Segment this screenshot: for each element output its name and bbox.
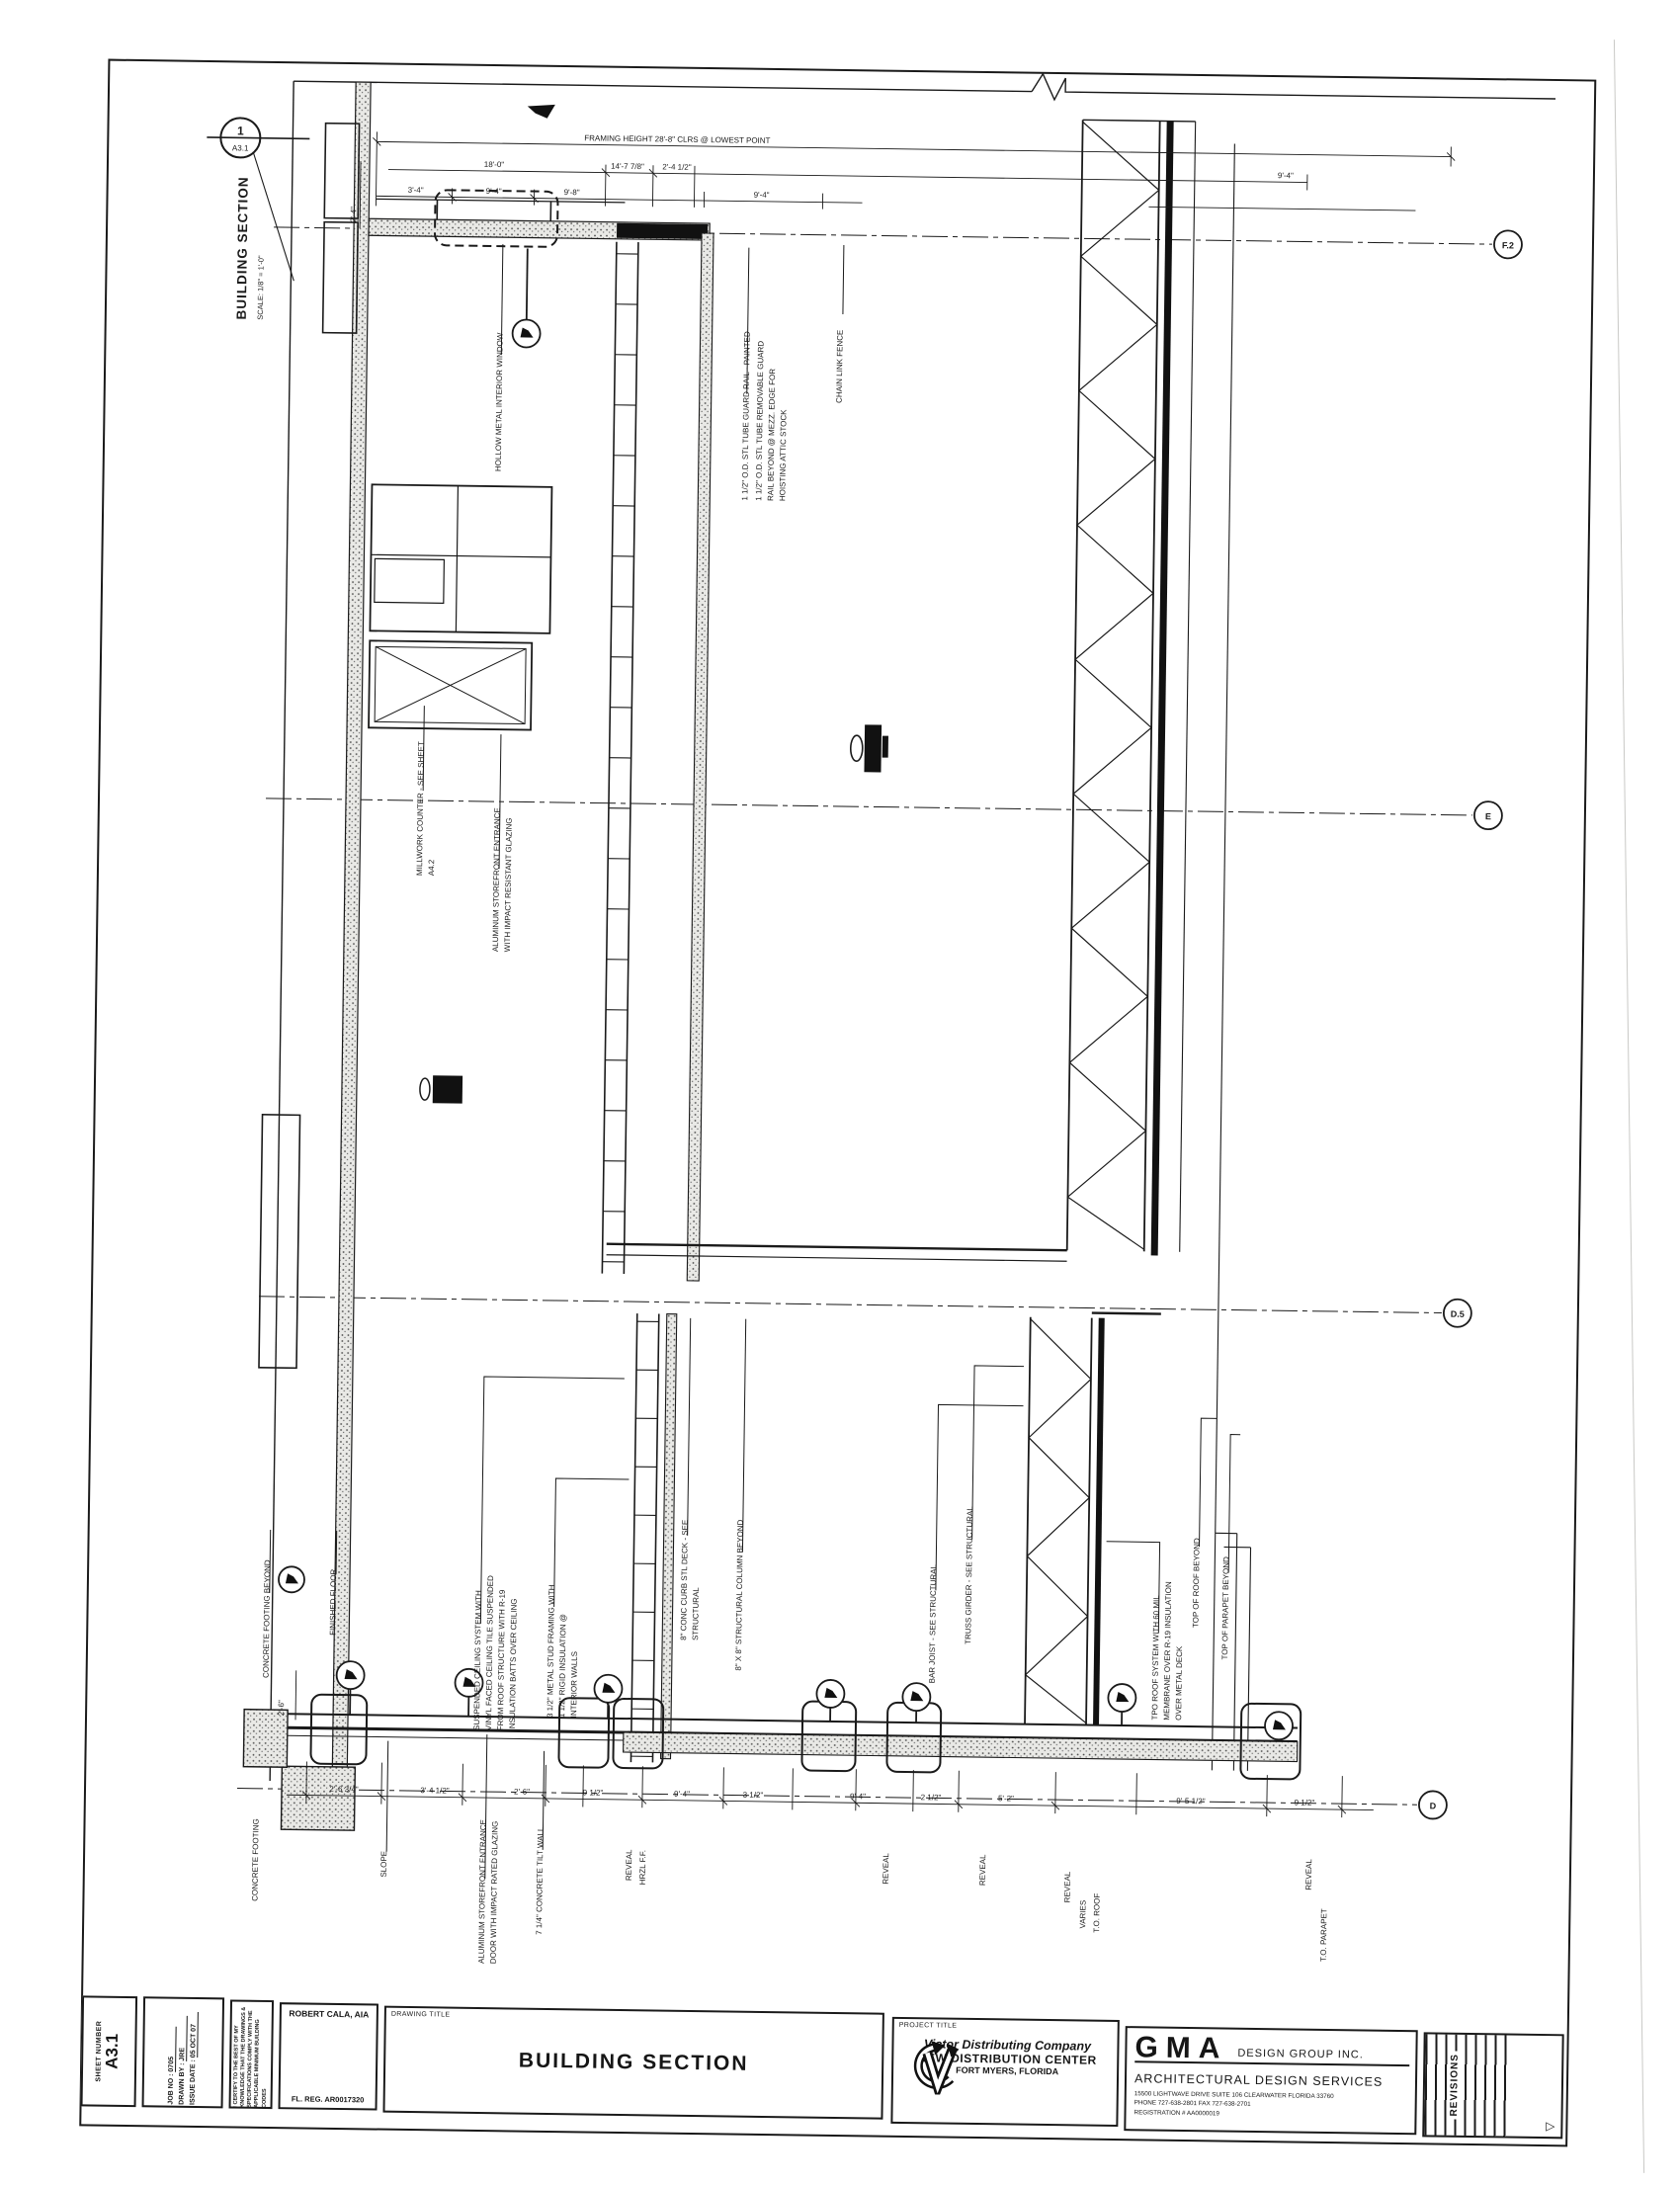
dimension-text: 9'-4"	[754, 191, 770, 200]
annotation: SUSPENDED CEILING SYSTEM WITH	[472, 1590, 483, 1730]
annotation: ALUMINUM STOREFRONT ENTRANCE	[477, 1819, 488, 1964]
dimension-text: 3 1/2"	[743, 1791, 764, 1800]
annotation: HRZL F.F.	[638, 1850, 647, 1885]
annotation: STRUCTURAL	[691, 1587, 701, 1640]
tilt-wall-bottom	[624, 1732, 1298, 1762]
certification-text: I CERTIFY TO THE BEST OF MY KNOWLEDGE TH…	[233, 2001, 270, 2108]
annotation: REVEAL	[978, 1854, 987, 1886]
annotation: HOISTING ATTIC STOCK	[778, 409, 788, 501]
drawing-title-box: DRAWING TITLE BUILDING SECTION	[382, 2006, 883, 2120]
revisions-label: REVISIONS	[1448, 2051, 1462, 2120]
annotation: T.O. PARAPET	[1319, 1908, 1329, 1962]
dimension-text: 9 1/2"	[1295, 1798, 1315, 1807]
annotation: MILLWORK COUNTER - SEE SHEET	[415, 741, 426, 876]
dimension-text: 3'-4"	[408, 186, 424, 195]
grid-bubble-label: D	[1430, 1801, 1437, 1810]
firm-suffix: DESIGN GROUP INC.	[1237, 2048, 1364, 2064]
annotation: 1 1/2" O.D. STL TUBE GUARD RAIL - PAINTE…	[740, 331, 751, 501]
annotation: FROM ROOF STRUCTURE WITH R-19	[496, 1589, 507, 1730]
annotation: INSULATION BATTS OVER CEILING	[508, 1598, 519, 1730]
vertical-dimension: 2'-6"	[277, 1700, 286, 1716]
section-marker-sheet: A3.1	[232, 143, 249, 152]
interior-window-elevation	[369, 484, 551, 730]
dimension-text: 9'-4"	[1278, 171, 1294, 180]
architect-registration: FL. REG. AR0017320	[281, 2094, 376, 2104]
annotation: HOLLOW METAL INTERIOR WINDOW	[494, 332, 505, 471]
annotation: VINYL FACED CEILING TILE SUSPENDED	[484, 1575, 495, 1730]
architect-name: ROBERT CALA, AIA	[282, 2008, 377, 2019]
annotation: VARIES	[1078, 1900, 1087, 1929]
dimension-text: 9'-8"	[564, 188, 580, 197]
annotation: ALUMINUM STOREFRONT ENTRANCE	[491, 807, 502, 952]
grid-bubble-label: D.5	[1451, 1309, 1465, 1319]
dimension-text: 9'-4"	[850, 1792, 866, 1801]
drawn-by-label: DRAWN BY :	[179, 2062, 187, 2104]
dimension-text: 2 1/2"	[921, 1793, 942, 1802]
dimension-text: 9'-5 1/2"	[1176, 1797, 1206, 1806]
project-title-box: PROJECT TITLE Victor Distributing Compan…	[890, 2017, 1119, 2127]
dimension-text: FRAMING HEIGHT 28'-8" CLRS @ LOWEST POIN…	[584, 133, 770, 145]
certification-box: I CERTIFY TO THE BEST OF MY KNOWLEDGE TH…	[229, 1999, 275, 2109]
dimension-text: 3'-4 1/2"	[420, 1786, 450, 1795]
dimension-text: 9'-4"	[674, 1790, 690, 1799]
annotation: BAR JOIST - SEE STRUCTURAL	[928, 1563, 939, 1683]
north-flag-marker	[528, 104, 555, 118]
issue-date-value: 05 OCT 07	[190, 2012, 199, 2058]
firm-services: ARCHITECTURAL DESIGN SERVICES	[1134, 2071, 1383, 2089]
annotation: CONCRETE FOOTING	[250, 1818, 260, 1901]
roof-deck-upper	[1151, 122, 1174, 1256]
annotation: A4.2	[427, 859, 436, 876]
project-title-label: PROJECT TITLE	[899, 2022, 958, 2030]
annotation: INTERIOR WALLS	[569, 1651, 579, 1718]
annotation: 3 1/2" METAL STUD FRAMING WITH	[546, 1584, 556, 1718]
roof-line-top	[270, 63, 1555, 1799]
revisions-grid	[1424, 2034, 1508, 2136]
annotation: DOOR WITH IMPACT RATED GLAZING	[489, 1821, 500, 1965]
annotation: 7 1/4" CONCRETE TILT WALL	[535, 1826, 546, 1935]
annotation: TOP OF PARAPET BEYOND	[1220, 1556, 1230, 1660]
annotation: MEMBRANE OVER R-19 INSULATION	[1162, 1581, 1173, 1721]
drawing-title: BUILDING SECTION	[385, 2048, 882, 2078]
annotation: REVEAL	[1304, 1859, 1313, 1891]
job-no-value: 0705	[168, 2027, 177, 2072]
annotation: 1 1/2" O.D. STL TUBE REMOVABLE GUARD	[754, 341, 765, 501]
vertical-dimension: 2'-4"	[349, 207, 358, 222]
architect-seal-box: ROBERT CALA, AIA FL. REG. AR0017320	[279, 2002, 378, 2110]
dims-top-group: FRAMING HEIGHT 28'-8" CLRS @ LOWEST POIN…	[408, 131, 1295, 208]
dimension-text: 18'-0"	[484, 160, 505, 169]
annotation: REVEAL	[1063, 1871, 1072, 1902]
interior-elevation-marker	[420, 1075, 462, 1104]
grid-lines	[237, 227, 1492, 1806]
annotations-group: HOLLOW METAL INTERIOR WINDOW 1 1/2" O.D.…	[250, 206, 1353, 1975]
building-section-drawing: F.2 E D.5 D	[0, 0, 1680, 2185]
annotation: 1 1/2" RIGID INSULATION @	[557, 1614, 567, 1718]
annotation: REVEAL	[625, 1849, 633, 1881]
sheet-number-box: SHEET NUMBER A3.1	[81, 1995, 138, 2107]
dimension-text: 9 1/2"	[583, 1788, 604, 1797]
roof-deck-upper-edge	[1180, 122, 1196, 1252]
revisions-box: REVISIONS ▷	[1422, 2032, 1563, 2139]
issue-date-label: ISSUE DATE :	[190, 2059, 198, 2105]
dimension-text: 5'-2"	[998, 1794, 1014, 1803]
firm-name: GMA	[1134, 2034, 1227, 2061]
interior-wall-upper	[687, 233, 714, 1281]
roof-deck-lower	[1093, 1318, 1105, 1725]
stud-wall-upper	[602, 242, 638, 1274]
annotation: WITH IMPACT RESISTANT GLAZING	[503, 817, 514, 952]
annotation: TOP OF ROOF BEYOND	[1191, 1538, 1201, 1628]
interior-elevation-marker	[850, 724, 888, 773]
section-marker-number: 1	[237, 124, 244, 137]
annotation: 8" X 8" STRUCTURAL COLUMN BEYOND	[734, 1519, 745, 1670]
firm-registration: REGISTRATION # AA0000019	[1134, 2108, 1333, 2120]
annotation: RAIL BEYOND @ MEZZ. EDGE FOR	[766, 369, 777, 501]
dimension-text: 2'-4 1/2"	[662, 162, 692, 171]
parapet-lines	[1212, 143, 1270, 1770]
grid-bubble-label: F.2	[1502, 240, 1514, 250]
job-no-label: JOB NO :	[168, 2073, 175, 2104]
annotation: CONCRETE FOOTING BEYOND	[262, 1559, 273, 1678]
dimension-text: 14'-7 7/8"	[611, 162, 644, 171]
annotation: FINISHED FLOOR	[328, 1568, 338, 1635]
annotation: TRUSS GIRDER - SEE STRUCTURAL	[964, 1506, 974, 1644]
drawing-title-label: DRAWING TITLE	[391, 2011, 451, 2019]
interior-wall-lower	[660, 1314, 676, 1759]
stud-wall-lower	[630, 1313, 658, 1762]
annotation: T.O. ROOF	[1092, 1893, 1102, 1933]
victor-logo	[901, 2037, 960, 2095]
grid-bubbles	[1419, 229, 1522, 1819]
low-roof-band	[607, 1244, 1067, 1262]
annotation: SLOPE	[379, 1851, 388, 1878]
dimension-text: 2'-6"	[514, 1787, 530, 1796]
annotation: TPO ROOF SYSTEM WITH 60 MIL	[1150, 1595, 1161, 1721]
firm-box: GMA DESIGN GROUP INC. ARCHITECTURAL DESI…	[1124, 2026, 1417, 2135]
roof-truss-upper	[1067, 120, 1196, 1251]
annotation: CHAIN LINK FENCE	[835, 330, 845, 403]
job-info-box: JOB NO : 0705 DRAWN BY : JRE ISSUE DATE …	[142, 1996, 225, 2108]
sheet-number: A3.1	[102, 2021, 123, 2082]
annotation: 8" CONC CURB STL DECK - SEE	[679, 1520, 690, 1640]
roof-truss-lower	[1025, 1312, 1161, 1726]
grid-bubble-label: E	[1485, 811, 1491, 821]
section-title: BUILDING SECTION	[234, 176, 251, 319]
dimension-text: 9'-4"	[486, 187, 502, 196]
drawn-by-value: JRE	[179, 2016, 188, 2061]
dimension-text: 2'-6 3/4"	[329, 1785, 359, 1794]
annotation: OVER METAL DECK	[1174, 1645, 1184, 1721]
annotation: REVEAL	[882, 1853, 890, 1885]
revision-triangle-icon: ▷	[1546, 2119, 1554, 2133]
section-scale: SCALE: 1/8" = 1'-0"	[256, 255, 266, 320]
drawing-sheet: F.2 E D.5 D	[0, 0, 1680, 2185]
